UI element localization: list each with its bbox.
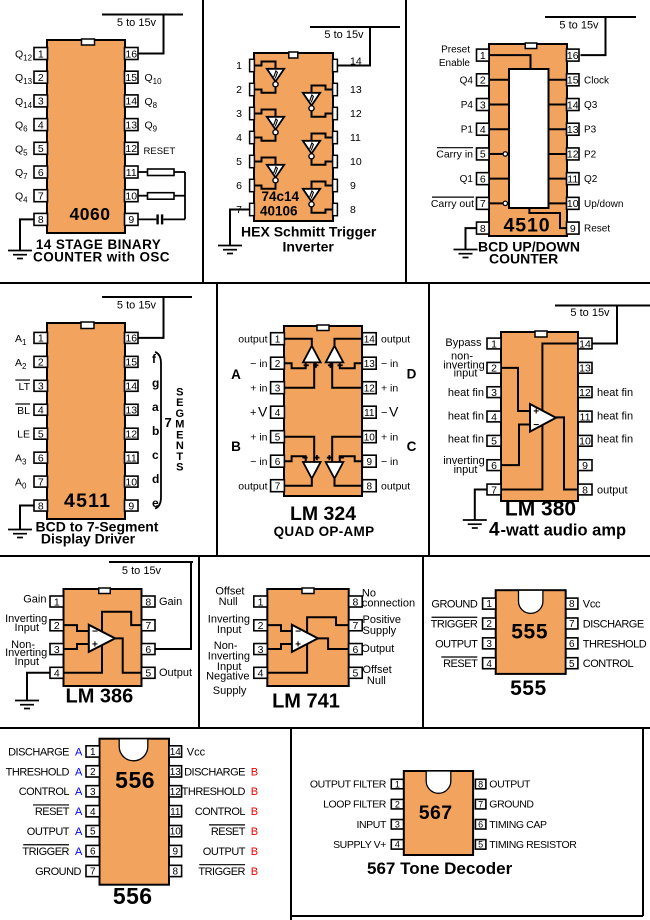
svg-text:input: input xyxy=(454,368,478,380)
svg-text:8: 8 xyxy=(353,596,359,608)
svg-text:14: 14 xyxy=(364,334,376,345)
svg-text:7: 7 xyxy=(90,867,96,878)
svg-text:14: 14 xyxy=(125,96,137,108)
svg-text:2: 2 xyxy=(54,620,60,632)
svg-text:GROUND: GROUND xyxy=(489,799,534,811)
svg-text:5 to 15v: 5 to 15v xyxy=(122,565,162,577)
svg-text:output: output xyxy=(381,481,410,493)
svg-text:4: 4 xyxy=(38,405,44,417)
svg-text:Carry out: Carry out xyxy=(431,198,474,210)
svg-text:11: 11 xyxy=(126,452,137,464)
svg-text:5 to 15v: 5 to 15v xyxy=(324,29,364,41)
svg-text:555: 555 xyxy=(510,677,547,700)
svg-text:14: 14 xyxy=(567,99,579,111)
svg-text:9: 9 xyxy=(128,500,134,512)
svg-text:4: 4 xyxy=(90,807,96,818)
svg-text:5: 5 xyxy=(491,436,497,448)
svg-text:Clock: Clock xyxy=(584,75,610,86)
svg-text:BL: BL xyxy=(17,405,30,417)
svg-text:TIMING CAP: TIMING CAP xyxy=(489,819,547,831)
svg-text:Enable: Enable xyxy=(439,58,471,69)
svg-text:5 to 15v: 5 to 15v xyxy=(559,20,599,32)
svg-text:COUNTER: COUNTER xyxy=(489,251,558,267)
svg-text:3: 3 xyxy=(38,96,44,108)
svg-text:15: 15 xyxy=(125,72,137,84)
svg-text:RESET: RESET xyxy=(443,658,478,670)
svg-text:7: 7 xyxy=(478,799,483,809)
svg-text:8: 8 xyxy=(569,599,575,610)
svg-text:− in: − in xyxy=(381,456,398,468)
svg-text:OUTPUT: OUTPUT xyxy=(435,638,478,650)
svg-text:A: A xyxy=(75,746,83,758)
svg-text:Display Driver: Display Driver xyxy=(41,531,136,547)
svg-text:2: 2 xyxy=(395,799,400,809)
svg-text:A: A xyxy=(75,826,83,838)
svg-text:3: 3 xyxy=(258,644,264,656)
svg-text:8: 8 xyxy=(38,500,44,512)
svg-text:4: 4 xyxy=(275,408,281,419)
svg-text:+ in: + in xyxy=(381,432,398,444)
svg-text:Vcc: Vcc xyxy=(187,746,206,758)
svg-text:13: 13 xyxy=(170,767,182,778)
svg-text:DISCHARGE: DISCHARGE xyxy=(8,746,69,758)
svg-text:6: 6 xyxy=(38,167,44,179)
svg-text:output: output xyxy=(238,481,267,493)
svg-text:connection: connection xyxy=(362,597,415,609)
svg-text:A: A xyxy=(231,367,241,382)
svg-text:+ in: + in xyxy=(250,383,267,395)
svg-text:TRIGGER: TRIGGER xyxy=(431,618,478,630)
svg-text:5: 5 xyxy=(478,840,483,850)
svg-text:LE: LE xyxy=(17,429,30,441)
svg-text:11: 11 xyxy=(350,132,361,144)
svg-text:12: 12 xyxy=(170,787,182,798)
svg-text:7: 7 xyxy=(569,619,575,630)
svg-text:14: 14 xyxy=(350,56,362,68)
svg-text:5: 5 xyxy=(38,143,44,155)
svg-text:3: 3 xyxy=(491,387,497,399)
svg-text:3: 3 xyxy=(395,819,400,829)
svg-text:Q1: Q1 xyxy=(460,174,474,185)
svg-text:15: 15 xyxy=(125,357,137,369)
svg-text:11: 11 xyxy=(580,411,591,423)
svg-text:GROUND: GROUND xyxy=(431,599,477,611)
svg-text:B: B xyxy=(251,766,258,778)
svg-text:SUPPLY V+: SUPPLY V+ xyxy=(333,839,386,851)
svg-text:5: 5 xyxy=(145,668,151,680)
svg-text:LM 324: LM 324 xyxy=(290,503,356,525)
svg-text:14: 14 xyxy=(125,381,137,393)
svg-text:P2: P2 xyxy=(584,149,597,160)
svg-text:6: 6 xyxy=(480,173,486,185)
svg-text:HEX Schmitt Trigger: HEX Schmitt Trigger xyxy=(241,223,377,239)
svg-text:5: 5 xyxy=(353,668,359,680)
svg-text:4510: 4510 xyxy=(504,215,551,237)
svg-text:+: + xyxy=(250,407,256,419)
svg-text:TRIGGER: TRIGGER xyxy=(22,846,69,858)
svg-text:2: 2 xyxy=(491,363,497,375)
svg-text:+: + xyxy=(92,640,98,651)
svg-text:A: A xyxy=(75,846,83,858)
svg-text:4: 4 xyxy=(38,119,44,131)
svg-text:2: 2 xyxy=(258,620,264,632)
svg-text:8: 8 xyxy=(480,223,486,235)
svg-text:12: 12 xyxy=(364,383,376,394)
svg-text:5: 5 xyxy=(569,659,575,670)
svg-text:output: output xyxy=(238,334,267,346)
svg-text:COUNTER with OSC: COUNTER with OSC xyxy=(33,249,170,264)
svg-text:15: 15 xyxy=(567,75,579,87)
svg-text:output: output xyxy=(381,334,410,346)
svg-text:1: 1 xyxy=(275,334,281,345)
svg-text:THRESHOLD: THRESHOLD xyxy=(182,786,246,798)
svg-text:+: + xyxy=(295,640,301,651)
svg-text:8: 8 xyxy=(478,779,483,789)
svg-text:OUTPUT FILTER: OUTPUT FILTER xyxy=(310,779,387,791)
svg-text:1: 1 xyxy=(236,60,242,72)
svg-text:1: 1 xyxy=(258,596,264,608)
svg-text:B: B xyxy=(251,846,258,858)
svg-text:12: 12 xyxy=(567,149,579,161)
svg-text:− in: − in xyxy=(250,456,267,468)
svg-text:RESET: RESET xyxy=(35,806,70,818)
svg-text:LM 386: LM 386 xyxy=(65,685,133,707)
svg-text:Preset: Preset xyxy=(441,45,470,56)
svg-text:6: 6 xyxy=(478,819,483,829)
svg-text:TRIGGER: TRIGGER xyxy=(198,866,245,878)
svg-text:Input: Input xyxy=(217,624,241,636)
svg-text:B: B xyxy=(251,866,258,878)
svg-text:-watt audio amp: -watt audio amp xyxy=(501,521,627,539)
svg-text:3: 3 xyxy=(236,108,242,120)
svg-text:−: − xyxy=(92,627,98,638)
svg-text:3: 3 xyxy=(38,381,44,393)
svg-text:LM 380: LM 380 xyxy=(505,497,576,520)
svg-text:6: 6 xyxy=(145,644,151,656)
svg-text:8: 8 xyxy=(367,481,373,492)
svg-text:1: 1 xyxy=(38,333,44,345)
svg-text:P3: P3 xyxy=(584,125,597,136)
svg-text:10: 10 xyxy=(350,156,362,168)
svg-text:13: 13 xyxy=(125,119,137,131)
svg-text:10: 10 xyxy=(567,198,579,210)
svg-text:P1: P1 xyxy=(461,125,474,136)
svg-text:OUTPUT: OUTPUT xyxy=(203,846,246,858)
svg-text:4060: 4060 xyxy=(70,204,111,224)
svg-text:b: b xyxy=(152,424,159,438)
svg-text:556: 556 xyxy=(113,883,153,909)
svg-text:9: 9 xyxy=(570,223,576,235)
svg-text:1: 1 xyxy=(491,338,497,350)
svg-text:A: A xyxy=(75,806,83,818)
svg-text:DISCHARGE: DISCHARGE xyxy=(184,766,245,778)
svg-text:7: 7 xyxy=(38,476,44,488)
svg-text:Gain: Gain xyxy=(159,596,182,608)
svg-text:QUAD OP-AMP: QUAD OP-AMP xyxy=(274,524,375,539)
svg-text:A: A xyxy=(75,766,83,778)
svg-text:555: 555 xyxy=(511,621,548,644)
svg-text:+ in: + in xyxy=(250,432,267,444)
svg-text:5: 5 xyxy=(90,827,96,838)
svg-text:14: 14 xyxy=(579,338,591,350)
svg-text:13: 13 xyxy=(364,359,376,370)
svg-text:B: B xyxy=(231,439,241,454)
svg-text:−: − xyxy=(533,420,539,431)
svg-text:+ in: + in xyxy=(381,383,398,395)
svg-text:V: V xyxy=(389,404,399,420)
svg-text:4: 4 xyxy=(491,411,497,423)
svg-text:B: B xyxy=(251,786,258,798)
svg-text:3: 3 xyxy=(480,99,486,111)
svg-text:6: 6 xyxy=(569,639,575,650)
svg-text:Output: Output xyxy=(159,667,192,679)
svg-text:2: 2 xyxy=(486,619,492,630)
svg-text:Up/down: Up/down xyxy=(584,199,623,210)
svg-text:16: 16 xyxy=(125,333,137,345)
svg-text:− in: − in xyxy=(250,358,267,370)
svg-text:16: 16 xyxy=(567,50,579,62)
svg-text:A: A xyxy=(75,786,83,798)
svg-text:8: 8 xyxy=(350,204,356,216)
svg-text:B: B xyxy=(251,826,258,838)
svg-text:Input: Input xyxy=(15,656,39,668)
svg-text:TIMING RESISTOR: TIMING RESISTOR xyxy=(489,839,577,851)
svg-text:13: 13 xyxy=(579,363,591,375)
svg-text:4: 4 xyxy=(395,840,400,850)
svg-text:10: 10 xyxy=(125,476,137,488)
svg-text:10: 10 xyxy=(364,432,376,443)
svg-text:d: d xyxy=(152,472,159,486)
svg-text:LOOP FILTER: LOOP FILTER xyxy=(323,799,387,811)
svg-text:9: 9 xyxy=(582,460,588,472)
svg-text:11: 11 xyxy=(170,807,181,818)
svg-text:12: 12 xyxy=(350,108,362,120)
svg-text:3: 3 xyxy=(486,639,492,650)
svg-text:12: 12 xyxy=(125,428,137,440)
svg-text:7: 7 xyxy=(491,484,497,496)
svg-text:5: 5 xyxy=(480,149,486,161)
svg-text:13: 13 xyxy=(567,124,579,136)
svg-text:567: 567 xyxy=(419,802,453,824)
svg-text:CONTROL: CONTROL xyxy=(195,806,246,818)
svg-text:6: 6 xyxy=(90,847,96,858)
svg-text:10: 10 xyxy=(125,190,137,202)
svg-text:CONTROL: CONTROL xyxy=(19,786,70,798)
svg-text:THRESHOLD: THRESHOLD xyxy=(6,766,70,778)
svg-text:Null: Null xyxy=(367,675,386,687)
svg-text:Output: Output xyxy=(361,643,394,655)
svg-text:OUTPUT: OUTPUT xyxy=(27,826,70,838)
svg-text:6: 6 xyxy=(353,644,359,656)
svg-text:heat fin: heat fin xyxy=(597,387,633,399)
svg-text:1: 1 xyxy=(90,747,96,758)
svg-text:4: 4 xyxy=(54,668,60,680)
svg-text:4511: 4511 xyxy=(64,490,111,512)
svg-text:1: 1 xyxy=(38,48,44,60)
svg-text:8: 8 xyxy=(145,596,151,608)
svg-text:2: 2 xyxy=(236,84,242,96)
svg-text:C: C xyxy=(407,439,417,454)
svg-text:9: 9 xyxy=(350,180,356,192)
svg-text:10: 10 xyxy=(579,436,591,448)
svg-text:LT: LT xyxy=(19,381,31,393)
svg-text:Q4: Q4 xyxy=(460,75,474,86)
svg-text:heat fin: heat fin xyxy=(448,387,484,399)
svg-text:heat fin: heat fin xyxy=(448,433,484,445)
svg-text:input: input xyxy=(454,464,478,476)
svg-text:c: c xyxy=(152,448,159,462)
svg-text:−: − xyxy=(295,627,301,638)
svg-text:Supply: Supply xyxy=(363,625,397,637)
svg-text:output: output xyxy=(597,484,628,496)
svg-text:10: 10 xyxy=(170,827,182,838)
svg-text:D: D xyxy=(407,366,417,381)
svg-text:2: 2 xyxy=(38,72,44,84)
svg-text:V: V xyxy=(258,404,268,420)
svg-text:74c14: 74c14 xyxy=(262,189,300,204)
svg-text:Q3: Q3 xyxy=(584,100,598,111)
svg-text:6: 6 xyxy=(38,452,44,464)
svg-text:RESET: RESET xyxy=(144,146,176,157)
svg-text:6: 6 xyxy=(236,180,242,192)
svg-text:5 to 15v: 5 to 15v xyxy=(117,17,157,29)
svg-text:9: 9 xyxy=(173,847,179,858)
svg-text:− in: − in xyxy=(381,358,398,370)
svg-text:Inverter: Inverter xyxy=(283,239,335,255)
svg-text:Gain: Gain xyxy=(23,594,46,606)
svg-text:Carry in: Carry in xyxy=(436,148,473,160)
svg-text:2: 2 xyxy=(480,75,486,87)
svg-text:Null: Null xyxy=(219,596,238,608)
svg-text:8: 8 xyxy=(582,484,588,496)
svg-text:14: 14 xyxy=(170,747,182,758)
svg-text:13: 13 xyxy=(125,405,137,417)
svg-text:11: 11 xyxy=(126,167,137,179)
svg-text:7: 7 xyxy=(165,415,172,430)
svg-text:2: 2 xyxy=(38,357,44,369)
svg-text:−: − xyxy=(381,407,387,419)
svg-text:3: 3 xyxy=(54,644,60,656)
svg-text:11: 11 xyxy=(364,408,375,419)
svg-text:11: 11 xyxy=(567,173,578,185)
svg-text:6: 6 xyxy=(491,460,497,472)
svg-text:THRESHOLD: THRESHOLD xyxy=(583,638,647,650)
svg-text:3: 3 xyxy=(275,383,281,394)
svg-text:5: 5 xyxy=(236,156,242,168)
svg-text:6: 6 xyxy=(275,457,281,468)
svg-text:4: 4 xyxy=(236,132,242,144)
svg-text:7: 7 xyxy=(275,481,281,492)
svg-text:8: 8 xyxy=(38,214,44,226)
svg-text:OUTPUT: OUTPUT xyxy=(489,779,531,791)
svg-text:3: 3 xyxy=(90,787,96,798)
svg-text:7: 7 xyxy=(353,620,359,632)
svg-text:RESET: RESET xyxy=(211,826,246,838)
svg-text:4: 4 xyxy=(258,668,264,680)
svg-text:4: 4 xyxy=(486,659,492,670)
svg-text:Q2: Q2 xyxy=(584,174,598,185)
svg-text:1: 1 xyxy=(54,596,60,608)
svg-text:Vcc: Vcc xyxy=(583,599,601,611)
svg-text:Input: Input xyxy=(15,622,39,634)
svg-text:5 to 15v: 5 to 15v xyxy=(117,300,157,312)
svg-text:g: g xyxy=(152,376,159,390)
svg-text:heat fin: heat fin xyxy=(448,410,484,422)
svg-text:INPUT: INPUT xyxy=(356,819,386,831)
svg-text:2: 2 xyxy=(275,359,281,370)
svg-text:4: 4 xyxy=(489,519,500,540)
svg-text:LM 741: LM 741 xyxy=(272,690,340,712)
svg-text:B: B xyxy=(251,806,258,818)
svg-text:9: 9 xyxy=(367,457,373,468)
svg-text:4: 4 xyxy=(480,124,486,136)
svg-text:12: 12 xyxy=(125,143,137,155)
svg-text:1: 1 xyxy=(480,50,486,62)
svg-text:Reset: Reset xyxy=(584,224,610,235)
svg-text:Bypass: Bypass xyxy=(445,337,482,349)
svg-text:DISCHARGE: DISCHARGE xyxy=(583,618,644,630)
svg-text:16: 16 xyxy=(125,48,137,60)
svg-text:Negative: Negative xyxy=(206,671,249,683)
svg-text:heat fin: heat fin xyxy=(597,410,633,422)
svg-text:7: 7 xyxy=(480,198,486,210)
svg-text:S: S xyxy=(176,462,183,474)
svg-text:5: 5 xyxy=(38,428,44,440)
svg-text:GROUND: GROUND xyxy=(35,866,81,878)
svg-text:Supply: Supply xyxy=(213,685,247,697)
svg-text:a: a xyxy=(152,400,159,414)
svg-text:7: 7 xyxy=(145,620,151,632)
svg-text:8: 8 xyxy=(173,867,179,878)
svg-text:556: 556 xyxy=(115,767,155,793)
svg-text:1: 1 xyxy=(486,599,492,610)
svg-text:+: + xyxy=(533,407,539,418)
svg-text:5 to 15v: 5 to 15v xyxy=(570,307,610,319)
svg-text:CONTROL: CONTROL xyxy=(583,658,634,670)
svg-text:5: 5 xyxy=(275,432,281,443)
svg-text:7: 7 xyxy=(38,190,44,202)
svg-text:1: 1 xyxy=(395,779,400,789)
svg-text:40106: 40106 xyxy=(260,203,298,218)
svg-text:13: 13 xyxy=(350,84,362,96)
svg-text:9: 9 xyxy=(128,214,134,226)
svg-text:12: 12 xyxy=(579,387,591,399)
svg-text:heat fin: heat fin xyxy=(597,433,633,445)
svg-text:567 Tone Decoder: 567 Tone Decoder xyxy=(367,859,513,878)
svg-text:P4: P4 xyxy=(461,100,474,111)
svg-text:2: 2 xyxy=(90,767,96,778)
